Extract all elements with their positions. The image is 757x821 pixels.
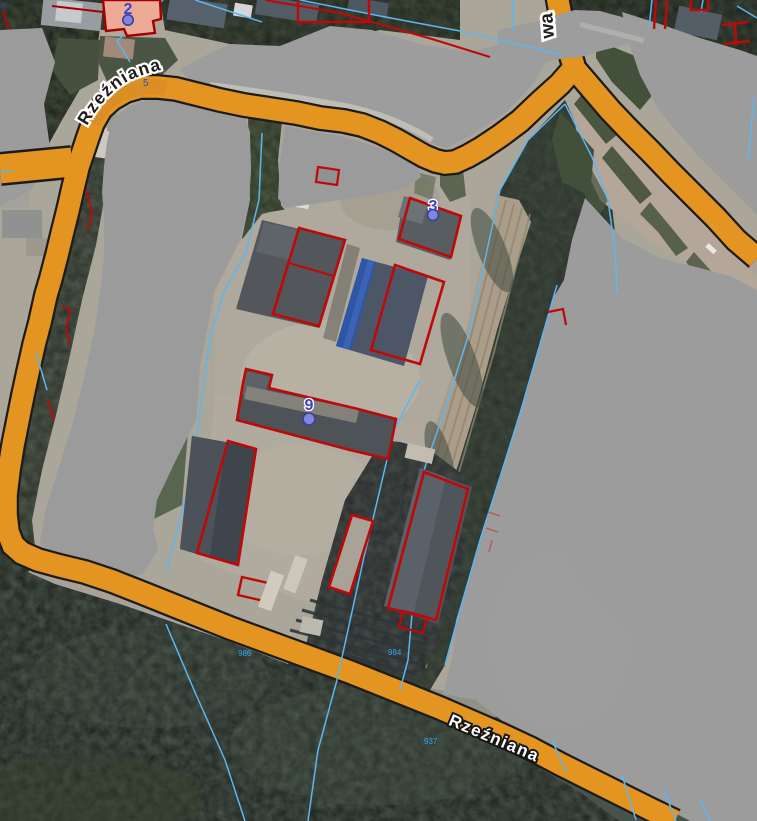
svg-text:wa: wa bbox=[536, 12, 559, 40]
svg-text:937: 937 bbox=[424, 737, 438, 746]
svg-text:984: 984 bbox=[388, 648, 402, 657]
svg-text:986: 986 bbox=[238, 649, 252, 658]
svg-text:5: 5 bbox=[143, 78, 149, 89]
svg-text:9: 9 bbox=[305, 397, 314, 414]
svg-text:n: n bbox=[1, 0, 6, 10]
